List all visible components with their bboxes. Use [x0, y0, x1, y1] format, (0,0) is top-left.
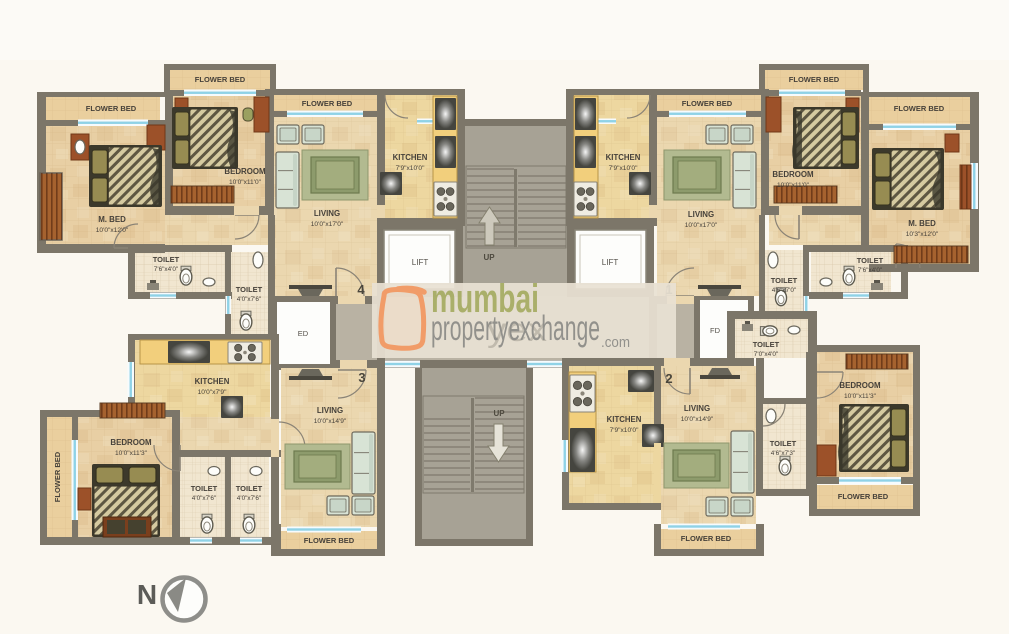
svg-text:10'0"x17'0": 10'0"x17'0"	[311, 221, 344, 228]
svg-text:TOILET: TOILET	[857, 256, 884, 265]
svg-text:2: 2	[665, 371, 672, 386]
svg-text:TOILET: TOILET	[236, 285, 263, 294]
svg-text:LIVING: LIVING	[688, 210, 714, 219]
svg-text:ED: ED	[298, 329, 309, 338]
svg-text:4'0"x7'6": 4'0"x7'6"	[192, 495, 216, 502]
svg-text:LIFT: LIFT	[412, 258, 429, 267]
svg-text:7'6"x4'0": 7'6"x4'0"	[858, 267, 882, 274]
svg-text:FLOWER BED: FLOWER BED	[681, 534, 732, 543]
svg-text:10'0"x11'3": 10'0"x11'3"	[844, 393, 877, 400]
svg-text:10'0"x14'9": 10'0"x14'9"	[681, 416, 714, 423]
svg-text:10'0"x17'0": 10'0"x17'0"	[685, 222, 718, 229]
svg-text:BEDROOM: BEDROOM	[839, 381, 881, 390]
svg-text:FLOWER BED: FLOWER BED	[195, 75, 246, 84]
svg-text:10'0"x7'9": 10'0"x7'9"	[198, 389, 227, 396]
svg-text:LIVING: LIVING	[684, 404, 710, 413]
svg-text:N: N	[137, 579, 157, 610]
svg-text:10'0"x11'3": 10'0"x11'3"	[115, 450, 148, 457]
svg-text:3: 3	[358, 370, 365, 385]
svg-text:LIVING: LIVING	[317, 406, 343, 415]
svg-text:UP: UP	[483, 253, 495, 262]
svg-text:7'9"x10'0": 7'9"x10'0"	[610, 427, 639, 434]
svg-text:UP: UP	[493, 409, 505, 418]
svg-text:4'6"x7'3": 4'6"x7'3"	[771, 450, 795, 457]
svg-text:10'0"x11'0": 10'0"x11'0"	[229, 179, 262, 186]
svg-text:10'3"x12'0": 10'3"x12'0"	[906, 231, 939, 238]
svg-text:7'9"x10'0": 7'9"x10'0"	[396, 165, 425, 172]
svg-text:FLOWER BED: FLOWER BED	[838, 492, 889, 501]
svg-text:7'9"x10'0": 7'9"x10'0"	[609, 165, 638, 172]
svg-text:TOILET: TOILET	[771, 276, 798, 285]
svg-text:4'6"x7'0": 4'6"x7'0"	[772, 287, 796, 294]
svg-text:10'0"x11'0": 10'0"x11'0"	[777, 182, 810, 189]
svg-text:M. BED: M. BED	[908, 219, 936, 228]
svg-text:7'0"x4'0": 7'0"x4'0"	[754, 351, 778, 358]
svg-text:LIFT: LIFT	[602, 258, 619, 267]
svg-text:propertyexchange: propertyexchange	[431, 309, 600, 348]
svg-text:TOILET: TOILET	[153, 255, 180, 264]
svg-text:BEDROOM: BEDROOM	[224, 167, 266, 176]
svg-text:7'6"x4'0": 7'6"x4'0"	[154, 266, 178, 273]
svg-text:BEDROOM: BEDROOM	[772, 170, 814, 179]
svg-text:.com: .com	[601, 334, 630, 351]
svg-text:4'0"x7'6": 4'0"x7'6"	[237, 495, 261, 502]
svg-text:10'0"x12'0": 10'0"x12'0"	[96, 227, 129, 234]
svg-text:TOILET: TOILET	[770, 439, 797, 448]
svg-text:FLOWER BED: FLOWER BED	[682, 99, 733, 108]
svg-text:FLOWER BED: FLOWER BED	[53, 451, 62, 502]
svg-text:TOILET: TOILET	[191, 484, 218, 493]
svg-text:TOILET: TOILET	[236, 484, 263, 493]
svg-text:FLOWER BED: FLOWER BED	[86, 104, 137, 113]
svg-text:TOILET: TOILET	[753, 340, 780, 349]
svg-text:FLOWER BED: FLOWER BED	[302, 99, 353, 108]
svg-text:FD: FD	[710, 326, 721, 335]
svg-text:KITCHEN: KITCHEN	[606, 153, 641, 162]
svg-text:KITCHEN: KITCHEN	[607, 415, 642, 424]
svg-text:M. BED: M. BED	[98, 215, 126, 224]
svg-text:BEDROOM: BEDROOM	[110, 438, 152, 447]
svg-text:FLOWER BED: FLOWER BED	[304, 536, 355, 545]
svg-text:4'0"x7'6": 4'0"x7'6"	[237, 296, 261, 303]
svg-text:LIVING: LIVING	[314, 209, 340, 218]
svg-text:KITCHEN: KITCHEN	[393, 153, 428, 162]
svg-text:KITCHEN: KITCHEN	[195, 377, 230, 386]
svg-text:4: 4	[357, 282, 365, 297]
svg-text:10'0"x14'9": 10'0"x14'9"	[314, 418, 347, 425]
svg-text:FLOWER BED: FLOWER BED	[789, 75, 840, 84]
svg-text:FLOWER BED: FLOWER BED	[894, 104, 945, 113]
